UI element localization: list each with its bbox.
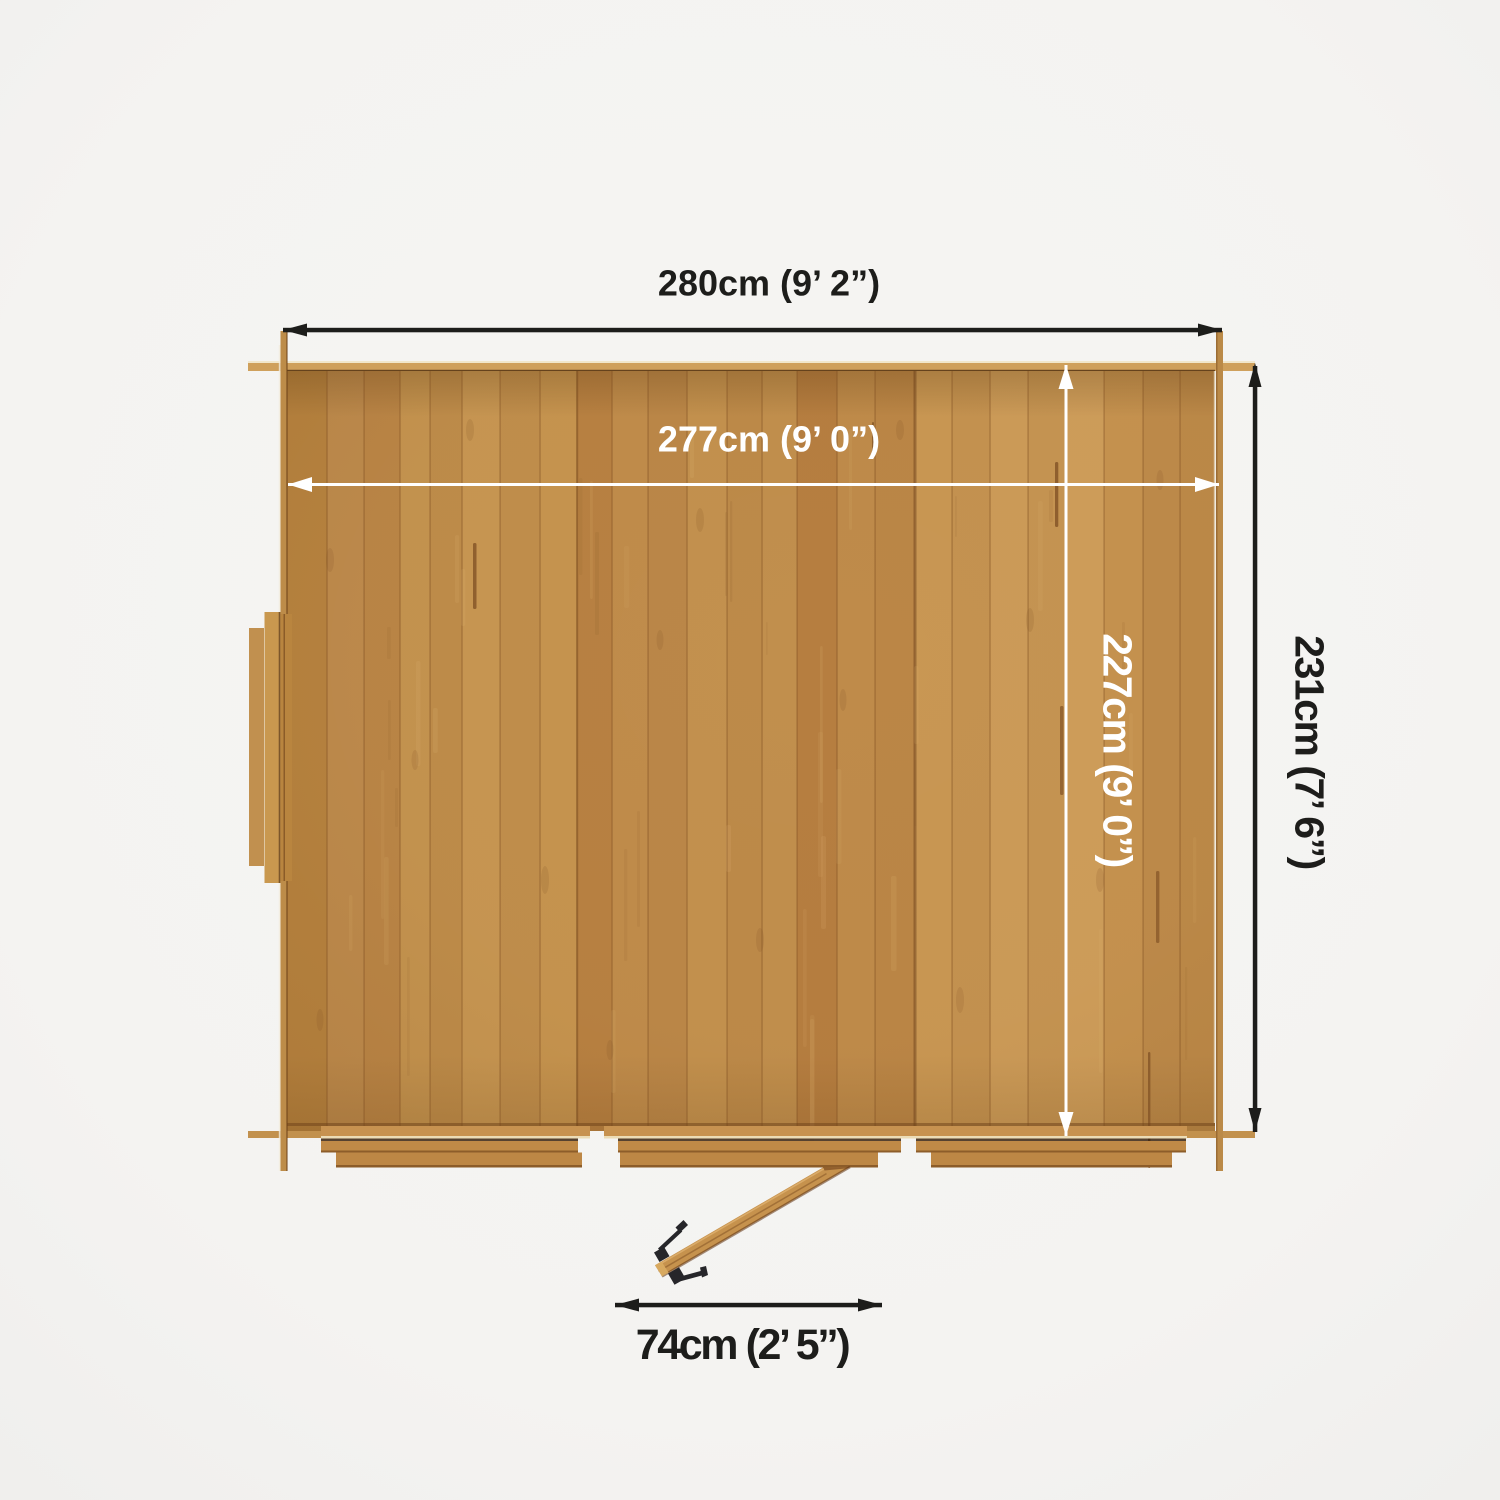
svg-text:280cm (9’ 2”): 280cm (9’ 2”) (658, 263, 880, 304)
svg-text:277cm (9’ 0”): 277cm (9’ 0”) (658, 419, 880, 460)
svg-text:231cm (7’ 6”): 231cm (7’ 6”) (1287, 635, 1333, 869)
svg-text:227cm (9’ 0”): 227cm (9’ 0”) (1095, 633, 1141, 867)
svg-text:74cm (2’ 5”): 74cm (2’ 5”) (636, 1321, 850, 1369)
